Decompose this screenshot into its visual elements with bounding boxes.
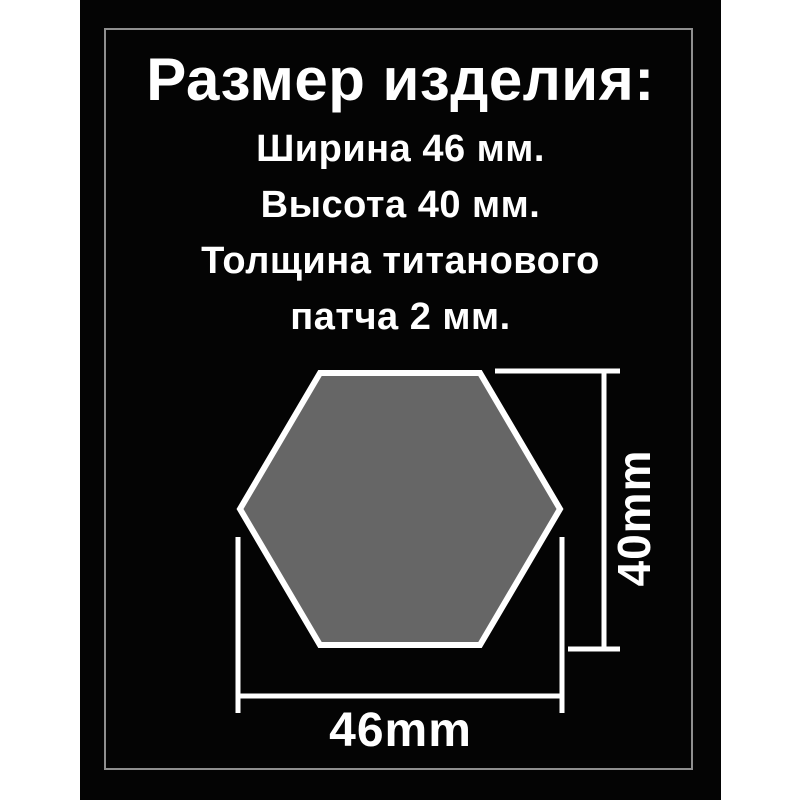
dimension-diagram [80,0,721,800]
product-size-infographic: Размер изделия: Ширина 46 мм. Высота 40 … [0,0,800,800]
hexagon-shape [240,373,560,645]
black-card: Размер изделия: Ширина 46 мм. Высота 40 … [80,0,721,800]
width-dimension-label: 46mm [80,703,721,758]
height-dimension-label: 40mm [609,418,659,618]
